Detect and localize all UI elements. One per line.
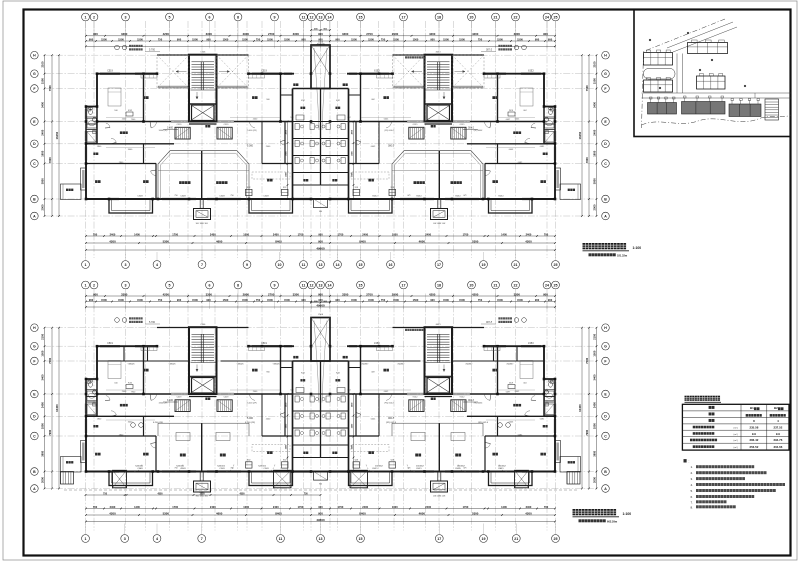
svg-text:C549: C549 bbox=[137, 196, 143, 198]
svg-text:3300: 3300 bbox=[514, 32, 521, 36]
svg-text:21: 21 bbox=[494, 283, 498, 287]
svg-text:2700: 2700 bbox=[268, 292, 275, 296]
svg-text:C506: C506 bbox=[200, 324, 206, 326]
svg-text:17: 17 bbox=[437, 263, 441, 267]
svg-text:(m/ ): (m/ ) bbox=[734, 440, 739, 442]
svg-text:2400: 2400 bbox=[425, 232, 431, 236]
svg-text:900: 900 bbox=[543, 32, 548, 36]
svg-text:1800: 1800 bbox=[199, 493, 205, 495]
svg-text:1500: 1500 bbox=[368, 298, 374, 302]
svg-text:1400: 1400 bbox=[134, 232, 140, 236]
svg-text:1500: 1500 bbox=[223, 298, 229, 302]
svg-text:900: 900 bbox=[177, 298, 182, 302]
svg-text:1500: 1500 bbox=[223, 37, 229, 41]
svg-text:C506: C506 bbox=[318, 42, 324, 44]
svg-text:1800: 1800 bbox=[41, 423, 45, 429]
svg-text:25: 25 bbox=[554, 537, 558, 541]
svg-text:17: 17 bbox=[402, 283, 406, 287]
svg-text:2000: 2000 bbox=[41, 477, 45, 483]
svg-text:G: G bbox=[33, 72, 36, 76]
svg-text::: : bbox=[689, 460, 690, 464]
svg-text:7: 7 bbox=[201, 263, 203, 267]
svg-text:1700: 1700 bbox=[463, 232, 469, 236]
svg-text:9.9: 9.9 bbox=[776, 432, 780, 436]
svg-text:253.52: 253.52 bbox=[749, 445, 758, 449]
svg-text:1700: 1700 bbox=[172, 232, 178, 236]
svg-text:4200: 4200 bbox=[525, 239, 532, 243]
svg-text:13: 13 bbox=[319, 537, 323, 541]
svg-text:1500: 1500 bbox=[192, 37, 198, 41]
svg-text:11: 11 bbox=[302, 263, 306, 267]
svg-text:900: 900 bbox=[89, 37, 94, 41]
svg-text:1: 1 bbox=[85, 283, 87, 287]
svg-text:12: 12 bbox=[310, 283, 314, 287]
svg-text:900: 900 bbox=[543, 292, 548, 296]
svg-text:21: 21 bbox=[514, 537, 518, 541]
svg-text:7500: 7500 bbox=[48, 357, 52, 363]
svg-text:5: 5 bbox=[169, 15, 171, 19]
svg-text:1500: 1500 bbox=[118, 298, 124, 302]
svg-text:1500: 1500 bbox=[393, 37, 399, 41]
svg-text:TaM2425: TaM2425 bbox=[217, 466, 225, 468]
svg-text:4200: 4200 bbox=[429, 32, 436, 36]
svg-text:7500: 7500 bbox=[48, 85, 52, 91]
svg-text:1700: 1700 bbox=[298, 505, 304, 509]
svg-text:900: 900 bbox=[335, 298, 340, 302]
svg-text:900: 900 bbox=[318, 32, 323, 36]
svg-text:7.: 7. bbox=[691, 500, 694, 504]
svg-text:3.400: 3.400 bbox=[167, 127, 174, 130]
svg-text:2: 2 bbox=[93, 283, 95, 287]
svg-text:5.: 5. bbox=[691, 489, 694, 493]
svg-text:22: 22 bbox=[514, 15, 518, 19]
svg-text:2400: 2400 bbox=[362, 232, 368, 236]
svg-text:(m/ ): (m/ ) bbox=[734, 447, 739, 449]
svg-text:1500: 1500 bbox=[593, 78, 597, 84]
svg-text:C549: C549 bbox=[219, 196, 225, 198]
svg-text:2400: 2400 bbox=[210, 232, 216, 236]
svg-text:14: 14 bbox=[328, 15, 332, 19]
svg-text:4500: 4500 bbox=[239, 492, 245, 495]
svg-text:13: 13 bbox=[319, 15, 323, 19]
svg-text:1500: 1500 bbox=[351, 298, 357, 302]
svg-text:K32: K32 bbox=[283, 187, 286, 189]
svg-text:4600: 4600 bbox=[216, 511, 223, 515]
svg-text:900: 900 bbox=[319, 211, 322, 213]
svg-text:(m/ ): (m/ ) bbox=[734, 434, 739, 436]
svg-text:1500: 1500 bbox=[101, 298, 107, 302]
svg-text:2900: 2900 bbox=[392, 32, 399, 36]
svg-text:9: 9 bbox=[274, 283, 276, 287]
svg-text:900: 900 bbox=[430, 298, 435, 302]
svg-text:1700: 1700 bbox=[463, 505, 469, 509]
svg-text:5300: 5300 bbox=[472, 511, 479, 515]
svg-text:1000: 1000 bbox=[243, 232, 249, 236]
svg-text:5.000: 5.000 bbox=[247, 145, 254, 148]
svg-text:3300: 3300 bbox=[293, 32, 300, 36]
svg-text:2400: 2400 bbox=[425, 505, 431, 509]
svg-text:900: 900 bbox=[318, 505, 323, 509]
svg-text:6: 6 bbox=[209, 15, 211, 19]
svg-text:900: 900 bbox=[318, 292, 323, 296]
svg-text:1800: 1800 bbox=[593, 423, 597, 429]
svg-text:4200: 4200 bbox=[163, 292, 170, 296]
svg-text:16450: 16450 bbox=[578, 131, 582, 139]
svg-text:4200: 4200 bbox=[472, 32, 479, 36]
svg-text:2400: 2400 bbox=[110, 505, 116, 509]
svg-text:1500: 1500 bbox=[497, 298, 503, 302]
svg-text:7500: 7500 bbox=[585, 357, 589, 363]
svg-text:8400: 8400 bbox=[275, 511, 282, 515]
svg-text:300 1800 300: 300 1800 300 bbox=[196, 223, 209, 225]
svg-text:1700: 1700 bbox=[338, 505, 344, 509]
svg-text:2.: 2. bbox=[691, 471, 694, 475]
svg-text:4600: 4600 bbox=[419, 511, 426, 515]
svg-text:B2: B2 bbox=[774, 406, 778, 410]
svg-text:2100: 2100 bbox=[41, 61, 45, 67]
svg-text:3: 3 bbox=[125, 283, 127, 287]
svg-text:1400: 1400 bbox=[134, 505, 140, 509]
svg-text:15: 15 bbox=[359, 283, 363, 287]
svg-text:1800: 1800 bbox=[593, 150, 597, 156]
svg-text:T.M0425: T.M0425 bbox=[237, 363, 244, 365]
svg-text:1000: 1000 bbox=[243, 505, 249, 509]
svg-text:1500: 1500 bbox=[459, 298, 465, 302]
svg-text:C519: C519 bbox=[107, 71, 113, 73]
svg-text:1500: 1500 bbox=[192, 298, 198, 302]
svg-text:294.76: 294.76 bbox=[773, 438, 782, 442]
svg-text:900: 900 bbox=[93, 32, 98, 36]
svg-text:3800: 3800 bbox=[41, 178, 45, 184]
svg-text:3300: 3300 bbox=[206, 32, 213, 36]
svg-text:3400 (2F): 3400 (2F) bbox=[159, 403, 168, 405]
svg-text:3400: 3400 bbox=[41, 374, 45, 380]
svg-text:11: 11 bbox=[302, 283, 306, 287]
svg-text:1500: 1500 bbox=[413, 37, 419, 41]
svg-text:4200: 4200 bbox=[429, 292, 436, 296]
svg-text:2900: 2900 bbox=[243, 292, 250, 296]
svg-text:C549: C549 bbox=[180, 196, 186, 198]
svg-text:8: 8 bbox=[237, 15, 239, 19]
svg-text:1500: 1500 bbox=[284, 37, 290, 41]
svg-text:2700: 2700 bbox=[366, 32, 373, 36]
svg-text:13: 13 bbox=[319, 263, 323, 267]
svg-text:1500: 1500 bbox=[41, 350, 45, 356]
svg-text:9.9: 9.9 bbox=[752, 432, 756, 436]
svg-text:17: 17 bbox=[402, 15, 406, 19]
svg-text:25: 25 bbox=[554, 263, 558, 267]
svg-text:25: 25 bbox=[554, 283, 558, 287]
svg-text:900: 900 bbox=[89, 298, 94, 302]
svg-text:900: 900 bbox=[318, 239, 323, 243]
svg-text:2400: 2400 bbox=[210, 505, 216, 509]
svg-text:750: 750 bbox=[256, 37, 261, 41]
svg-text:900: 900 bbox=[177, 37, 182, 41]
svg-text:900: 900 bbox=[318, 511, 323, 515]
svg-text:24: 24 bbox=[545, 15, 549, 19]
svg-text:T.M0425: T.M0425 bbox=[128, 363, 135, 365]
svg-text:2400: 2400 bbox=[362, 505, 368, 509]
svg-text:900: 900 bbox=[335, 37, 340, 41]
svg-text:6.: 6. bbox=[691, 495, 694, 499]
svg-text:14: 14 bbox=[328, 283, 332, 287]
svg-text:283.42: 283.42 bbox=[749, 438, 758, 442]
svg-text:1000: 1000 bbox=[392, 232, 398, 236]
svg-text:4200: 4200 bbox=[163, 32, 170, 36]
svg-text:B1: B1 bbox=[750, 406, 754, 410]
svg-text:49600: 49600 bbox=[316, 303, 325, 307]
svg-text:900: 900 bbox=[318, 298, 323, 302]
svg-text:1700: 1700 bbox=[172, 505, 178, 509]
svg-text:1500: 1500 bbox=[517, 37, 523, 41]
svg-text:T.M0425: T.M0425 bbox=[273, 363, 280, 365]
svg-text:5.700: 5.700 bbox=[149, 321, 156, 324]
svg-text:C506: C506 bbox=[200, 52, 206, 54]
svg-text:5300: 5300 bbox=[163, 239, 170, 243]
svg-text:7: 7 bbox=[201, 537, 203, 541]
svg-text:21: 21 bbox=[514, 263, 518, 267]
svg-text:1500: 1500 bbox=[368, 37, 374, 41]
svg-text:5300: 5300 bbox=[163, 511, 170, 515]
svg-text:2400: 2400 bbox=[41, 402, 45, 408]
svg-text:49600: 49600 bbox=[316, 246, 325, 250]
svg-text:2400: 2400 bbox=[526, 505, 532, 509]
svg-text:700: 700 bbox=[93, 232, 98, 236]
svg-text:1500: 1500 bbox=[137, 37, 143, 41]
svg-text:4200: 4200 bbox=[472, 292, 479, 296]
svg-text:900: 900 bbox=[93, 292, 98, 296]
svg-text:4600: 4600 bbox=[419, 239, 426, 243]
svg-text:7900: 7900 bbox=[48, 157, 52, 163]
svg-text:900: 900 bbox=[301, 298, 306, 302]
svg-text:900: 900 bbox=[319, 484, 322, 486]
svg-text:49600: 49600 bbox=[316, 518, 325, 522]
svg-text:4200: 4200 bbox=[109, 239, 116, 243]
svg-text:235.58: 235.58 bbox=[749, 425, 758, 429]
svg-text:3300: 3300 bbox=[342, 292, 349, 296]
svg-text:3300: 3300 bbox=[121, 292, 128, 296]
svg-text:900: 900 bbox=[430, 37, 435, 41]
svg-text:1400: 1400 bbox=[501, 505, 507, 509]
svg-text:1500: 1500 bbox=[443, 37, 449, 41]
svg-text:1500: 1500 bbox=[101, 37, 107, 41]
svg-text:1:100: 1:100 bbox=[623, 512, 632, 516]
svg-text:8400: 8400 bbox=[359, 239, 366, 243]
svg-text:3400: 3400 bbox=[41, 102, 45, 108]
svg-text:1500: 1500 bbox=[41, 78, 45, 84]
svg-text:16450: 16450 bbox=[55, 131, 59, 139]
svg-text:900: 900 bbox=[301, 37, 306, 41]
svg-text:2100: 2100 bbox=[593, 61, 597, 67]
svg-text:8400: 8400 bbox=[359, 511, 366, 515]
svg-text:750: 750 bbox=[158, 298, 163, 302]
svg-text:750: 750 bbox=[478, 37, 483, 41]
svg-text:15: 15 bbox=[359, 537, 363, 541]
svg-text:2000: 2000 bbox=[41, 204, 45, 210]
svg-text:11: 11 bbox=[302, 15, 306, 19]
svg-text:C519: C519 bbox=[261, 71, 267, 73]
svg-text:750: 750 bbox=[478, 298, 483, 302]
svg-text:700: 700 bbox=[544, 505, 549, 509]
svg-text:C549: C549 bbox=[219, 468, 225, 470]
svg-text:1: 1 bbox=[85, 537, 87, 541]
svg-text:1:100: 1:100 bbox=[633, 246, 642, 250]
svg-text:1500: 1500 bbox=[267, 37, 273, 41]
svg-text:750: 750 bbox=[158, 37, 163, 41]
svg-text:4.: 4. bbox=[691, 483, 694, 487]
svg-text:1500: 1500 bbox=[118, 37, 124, 41]
svg-text:K32: K32 bbox=[283, 460, 286, 462]
svg-text:4: 4 bbox=[156, 263, 158, 267]
svg-text:7900: 7900 bbox=[585, 157, 589, 163]
svg-text:10: 10 bbox=[278, 263, 282, 267]
svg-text:1700: 1700 bbox=[338, 232, 344, 236]
svg-text:6: 6 bbox=[209, 283, 211, 287]
svg-text:700: 700 bbox=[93, 505, 98, 509]
svg-text:C549: C549 bbox=[263, 468, 269, 470]
svg-text:1.: 1. bbox=[691, 465, 694, 469]
svg-text:4200: 4200 bbox=[109, 511, 116, 515]
svg-text:2400: 2400 bbox=[273, 505, 279, 509]
svg-text:900: 900 bbox=[206, 298, 211, 302]
svg-text:900: 900 bbox=[535, 37, 540, 41]
svg-text:18: 18 bbox=[437, 283, 441, 287]
svg-text:21: 21 bbox=[494, 15, 498, 19]
svg-text:2700: 2700 bbox=[366, 292, 373, 296]
svg-text:19: 19 bbox=[482, 537, 486, 541]
svg-text:1500: 1500 bbox=[137, 298, 143, 302]
svg-text:900: 900 bbox=[535, 298, 540, 302]
svg-text:11: 11 bbox=[279, 537, 283, 541]
svg-text:C549: C549 bbox=[263, 196, 269, 198]
svg-text:4: 4 bbox=[156, 537, 158, 541]
svg-text:750: 750 bbox=[381, 298, 386, 302]
svg-text:1400: 1400 bbox=[501, 232, 507, 236]
svg-text:3300: 3300 bbox=[342, 32, 349, 36]
svg-text:24: 24 bbox=[545, 283, 549, 287]
svg-text:3.: 3. bbox=[691, 477, 694, 481]
svg-text:13: 13 bbox=[319, 283, 323, 287]
svg-text:17: 17 bbox=[437, 537, 441, 541]
svg-text:C519: C519 bbox=[261, 343, 267, 345]
svg-text:2400: 2400 bbox=[110, 232, 116, 236]
svg-text:3: 3 bbox=[124, 537, 126, 541]
svg-text:2400: 2400 bbox=[526, 232, 532, 236]
svg-text:304.66: 304.66 bbox=[773, 445, 782, 449]
svg-text:1500: 1500 bbox=[267, 298, 273, 302]
svg-text:750: 750 bbox=[381, 37, 386, 41]
svg-text:1500: 1500 bbox=[593, 350, 597, 356]
svg-text:3800: 3800 bbox=[593, 178, 597, 184]
svg-text:750: 750 bbox=[256, 298, 261, 302]
svg-text:2400: 2400 bbox=[593, 402, 597, 408]
svg-text:1500: 1500 bbox=[497, 37, 503, 41]
svg-text:5.000 (2F): 5.000 (2F) bbox=[247, 403, 257, 405]
svg-text:2400: 2400 bbox=[41, 129, 45, 135]
svg-text:7900: 7900 bbox=[48, 429, 52, 435]
svg-text:G: G bbox=[33, 345, 36, 349]
svg-text:900: 900 bbox=[318, 232, 323, 236]
svg-text:3300: 3300 bbox=[121, 32, 128, 36]
svg-text:1500: 1500 bbox=[443, 298, 449, 302]
svg-text:1500: 1500 bbox=[413, 298, 419, 302]
svg-text:5.700: 5.700 bbox=[149, 49, 156, 52]
svg-text:K32: K32 bbox=[247, 187, 250, 189]
svg-text:16: 16 bbox=[389, 263, 393, 267]
svg-text:15: 15 bbox=[359, 263, 363, 267]
svg-text:9: 9 bbox=[274, 15, 276, 19]
svg-text:1800: 1800 bbox=[41, 150, 45, 156]
svg-text:2000: 2000 bbox=[593, 477, 597, 483]
svg-text:1500: 1500 bbox=[517, 298, 523, 302]
svg-text:3: 3 bbox=[125, 15, 127, 19]
svg-text:TaM2425: TaM2425 bbox=[258, 466, 266, 468]
svg-text:9: 9 bbox=[246, 263, 248, 267]
svg-text:25: 25 bbox=[554, 15, 558, 19]
svg-text:4500: 4500 bbox=[157, 492, 163, 495]
svg-text:(m/ ): (m/ ) bbox=[734, 427, 739, 429]
svg-text:22: 22 bbox=[514, 283, 518, 287]
svg-text:2700: 2700 bbox=[268, 32, 275, 36]
svg-text:900: 900 bbox=[548, 37, 553, 41]
svg-text:5: 5 bbox=[169, 283, 171, 287]
svg-text:521.32m: 521.32m bbox=[617, 253, 628, 257]
svg-text:1500: 1500 bbox=[351, 37, 357, 41]
svg-text:15: 15 bbox=[359, 15, 363, 19]
svg-text:1700: 1700 bbox=[298, 232, 304, 236]
svg-text:12: 12 bbox=[310, 15, 314, 19]
svg-text:G: G bbox=[604, 72, 607, 76]
svg-text:237.52: 237.52 bbox=[773, 425, 782, 429]
svg-text:14: 14 bbox=[336, 263, 340, 267]
svg-text:900: 900 bbox=[548, 298, 553, 302]
svg-text:1500: 1500 bbox=[242, 298, 248, 302]
svg-text:1: 1 bbox=[85, 263, 87, 267]
svg-text:2100: 2100 bbox=[41, 333, 45, 339]
svg-text:C506: C506 bbox=[318, 314, 324, 316]
svg-text:K32: K32 bbox=[247, 460, 250, 462]
svg-text:7500: 7500 bbox=[585, 85, 589, 91]
svg-text:300 1800 300: 300 1800 300 bbox=[196, 496, 209, 498]
svg-text:1500: 1500 bbox=[459, 37, 465, 41]
svg-text:4200: 4200 bbox=[525, 511, 532, 515]
svg-text:8: 8 bbox=[237, 283, 239, 287]
svg-text:2900: 2900 bbox=[392, 292, 399, 296]
svg-text:3400: 3400 bbox=[593, 102, 597, 108]
svg-text:20: 20 bbox=[470, 15, 474, 19]
svg-text:3800: 3800 bbox=[41, 450, 45, 456]
svg-text:3400 (2F): 3400 (2F) bbox=[159, 130, 168, 132]
svg-text:2400: 2400 bbox=[593, 129, 597, 135]
svg-text:1500: 1500 bbox=[242, 37, 248, 41]
svg-text:2000: 2000 bbox=[593, 204, 597, 210]
svg-text:3300: 3300 bbox=[206, 292, 213, 296]
svg-text:2: 2 bbox=[93, 15, 95, 19]
svg-text:602.29m: 602.29m bbox=[607, 519, 618, 523]
svg-text:2900: 2900 bbox=[243, 32, 250, 36]
svg-text:1500: 1500 bbox=[284, 298, 290, 302]
svg-text:2100: 2100 bbox=[593, 333, 597, 339]
svg-text:16450: 16450 bbox=[55, 404, 59, 412]
svg-text:T.M0425: T.M0425 bbox=[169, 363, 176, 365]
svg-text:3400: 3400 bbox=[593, 374, 597, 380]
svg-text:900: 900 bbox=[206, 37, 211, 41]
svg-text:5300: 5300 bbox=[472, 239, 479, 243]
svg-text:3.400: 3.400 bbox=[167, 399, 174, 402]
svg-text:5.000 (2F): 5.000 (2F) bbox=[247, 130, 257, 132]
svg-text:18: 18 bbox=[437, 15, 441, 19]
svg-text:G: G bbox=[604, 345, 607, 349]
